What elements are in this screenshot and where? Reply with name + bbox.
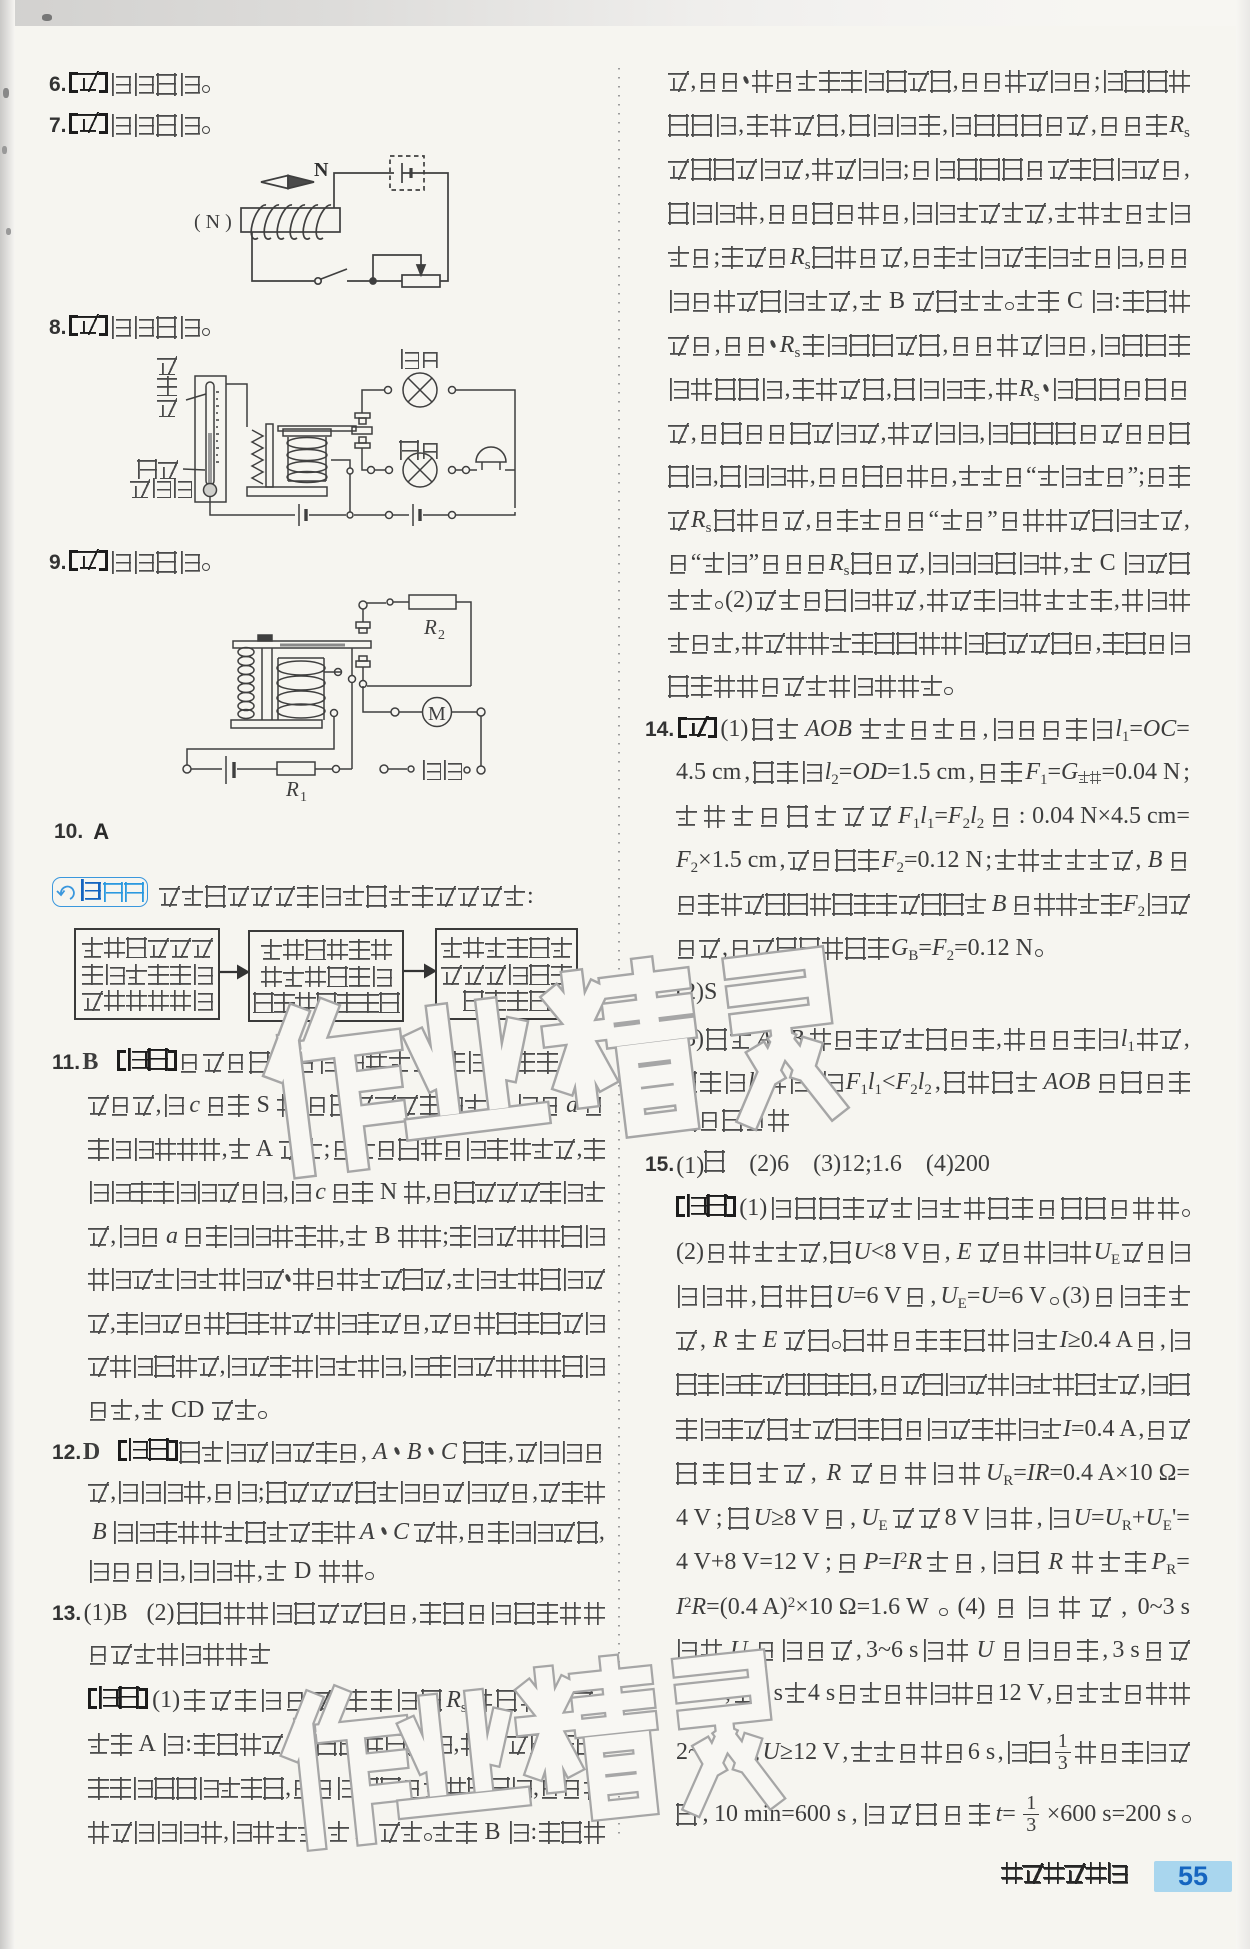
svg-text:( N ): ( N ) [194,211,232,233]
svg-text:M: M [428,703,446,725]
svg-text:R: R [423,615,437,639]
svg-text:2: 2 [438,628,445,643]
svg-text:1: 1 [300,790,307,805]
svg-text:N: N [314,159,329,181]
svg-text:R: R [285,777,299,801]
